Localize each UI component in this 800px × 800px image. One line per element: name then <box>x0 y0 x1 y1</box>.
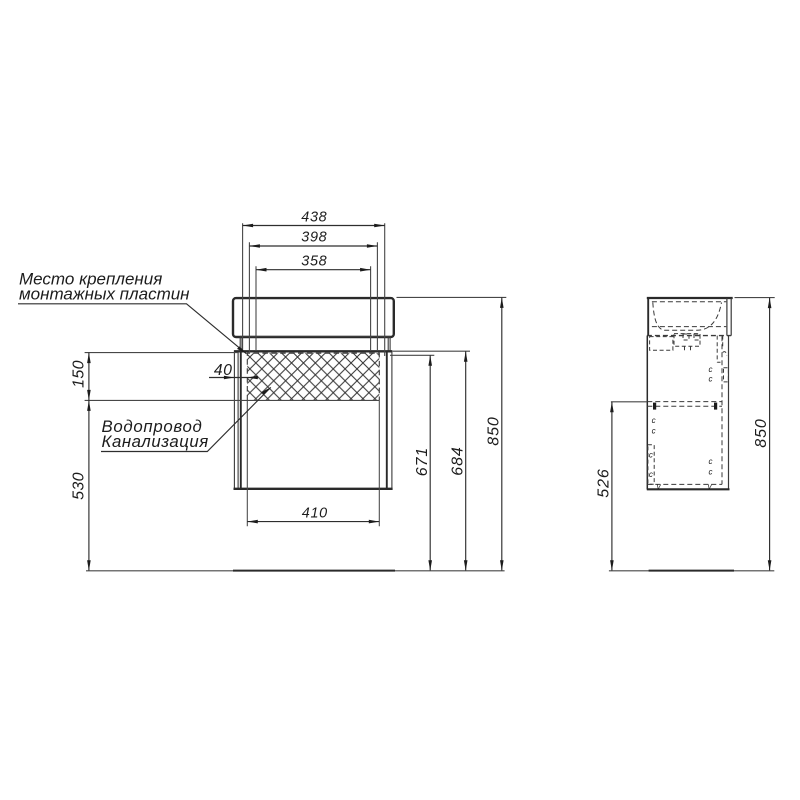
svg-text:526: 526 <box>596 468 613 497</box>
svg-text:c: c <box>709 468 713 477</box>
svg-text:150: 150 <box>71 360 88 388</box>
svg-text:530: 530 <box>71 472 88 500</box>
svg-text:671: 671 <box>414 447 431 476</box>
svg-text:850: 850 <box>753 418 770 447</box>
svg-text:c: c <box>652 427 656 436</box>
svg-text:монтажных пластин: монтажных пластин <box>19 284 190 303</box>
svg-text:c: c <box>709 457 713 466</box>
svg-text:c: c <box>649 470 653 479</box>
svg-text:Канализация: Канализация <box>102 432 209 451</box>
svg-text:358: 358 <box>301 253 327 269</box>
svg-text:684: 684 <box>450 446 467 475</box>
svg-text:850: 850 <box>486 416 503 445</box>
svg-text:438: 438 <box>301 210 327 226</box>
svg-text:c: c <box>709 365 713 374</box>
svg-text:40: 40 <box>214 362 233 379</box>
svg-text:410: 410 <box>302 505 328 521</box>
svg-text:398: 398 <box>301 229 327 245</box>
svg-text:c: c <box>709 375 713 384</box>
svg-text:c: c <box>649 451 653 460</box>
svg-text:c: c <box>652 416 656 425</box>
